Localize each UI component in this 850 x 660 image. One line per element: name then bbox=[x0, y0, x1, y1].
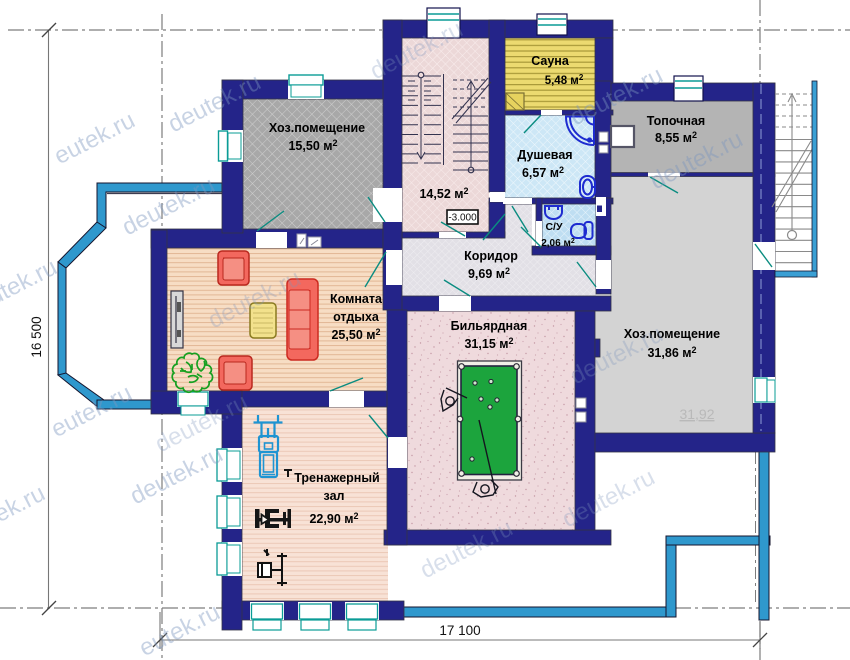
svg-text:зал: зал bbox=[324, 489, 345, 503]
svg-text:31,15 м2: 31,15 м2 bbox=[464, 336, 513, 351]
svg-text:С/У: С/У bbox=[545, 221, 563, 233]
svg-text:eutek.ru: eutek.ru bbox=[50, 107, 140, 170]
svg-text:2,06 м2: 2,06 м2 bbox=[541, 238, 575, 249]
svg-text:31,92: 31,92 bbox=[679, 406, 714, 422]
svg-text:Коридор: Коридор bbox=[464, 249, 518, 263]
svg-text:14,52 м2: 14,52 м2 bbox=[419, 186, 468, 201]
svg-text:25,50 м2: 25,50 м2 bbox=[331, 327, 380, 342]
svg-text:17 100: 17 100 bbox=[439, 623, 480, 638]
svg-text:Комната: Комната bbox=[330, 292, 383, 306]
svg-text:16 500: 16 500 bbox=[29, 316, 44, 357]
svg-text:Душевая: Душевая bbox=[517, 148, 572, 162]
svg-text:Бильярдная: Бильярдная bbox=[451, 319, 528, 333]
svg-text:15,50 м2: 15,50 м2 bbox=[288, 138, 337, 153]
svg-text:Тренажерный: Тренажерный bbox=[294, 471, 379, 485]
svg-text:Сауна: Сауна bbox=[531, 54, 570, 68]
svg-text:22,90 м2: 22,90 м2 bbox=[309, 511, 358, 526]
svg-text:8,55 м2: 8,55 м2 bbox=[655, 130, 697, 145]
svg-text:отдыха: отдыха bbox=[333, 310, 380, 324]
svg-text:tek.ru: tek.ru bbox=[0, 480, 49, 531]
svg-text:deutek.ru: deutek.ru bbox=[0, 254, 61, 323]
svg-text:5,48 м2: 5,48 м2 bbox=[545, 73, 584, 87]
svg-text:9,69 м2: 9,69 м2 bbox=[468, 266, 510, 281]
svg-text:Топочная: Топочная bbox=[647, 114, 705, 128]
svg-text:-3.000: -3.000 bbox=[448, 213, 477, 224]
svg-text:Хоз.помещение: Хоз.помещение bbox=[269, 121, 365, 135]
svg-text:eutek.ru: eutek.ru bbox=[47, 380, 137, 443]
svg-text:6,57 м2: 6,57 м2 bbox=[522, 165, 564, 180]
